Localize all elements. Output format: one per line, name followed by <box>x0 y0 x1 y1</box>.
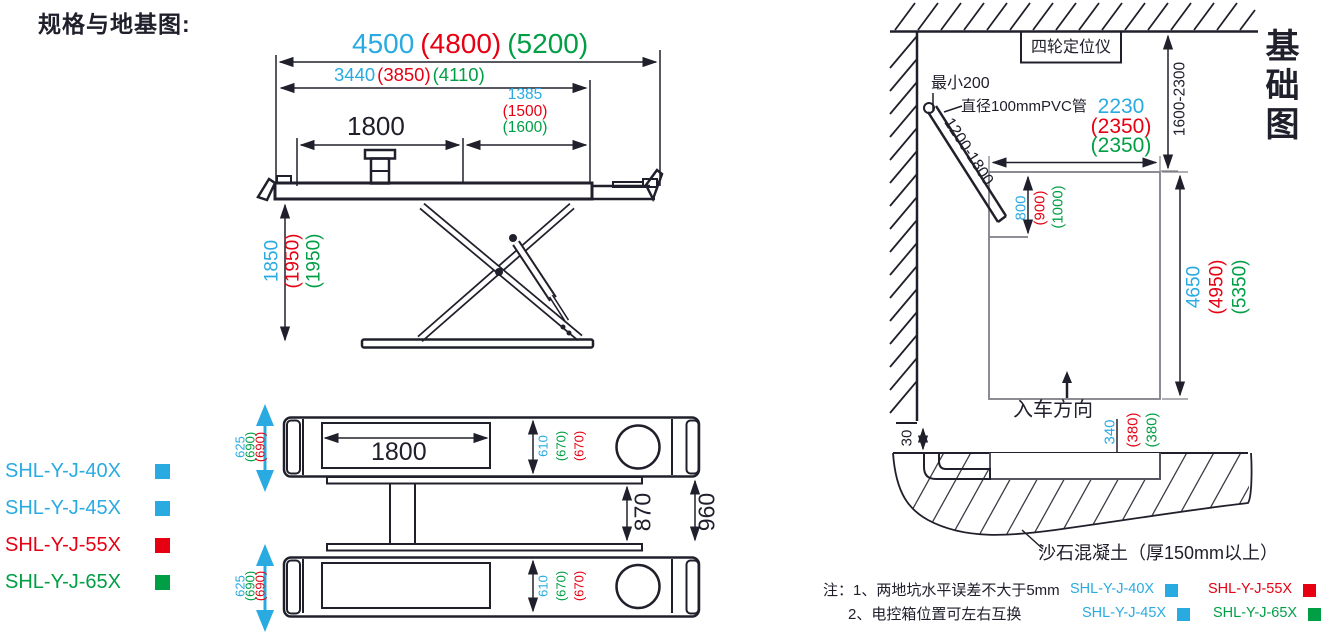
dim-value-green: (5200) <box>507 29 588 59</box>
dim-value-green: (4110) <box>433 65 485 85</box>
dim-pit-depth-blue: 340 <box>1103 419 1118 444</box>
model-name: SHL-Y-J-65X <box>5 572 121 594</box>
dim-pit-width: 2230 (2350) (2350) <box>1085 97 1157 156</box>
dim-wall-distance: 1600-2300 <box>1172 62 1188 136</box>
legend-swatch <box>1177 608 1190 621</box>
dim-platform-width-red: (670) <box>573 571 586 601</box>
legend-swatch <box>1308 608 1321 621</box>
dim-total-length: 4500 (4800) (5200) <box>352 29 588 59</box>
legend-model-name: SHL-Y-J-45X <box>1082 606 1166 622</box>
dim-platform-width-blue: 610 <box>537 435 550 457</box>
note-line-1: 注：1、两地坑水平误差不大于5mm <box>823 583 1060 599</box>
model-swatch <box>155 538 170 553</box>
dim-platform-length: 3440 (3850) (4110) <box>334 65 485 85</box>
dim-platform-gap: 960 <box>696 493 719 531</box>
dim-value-blue: 3440 <box>334 65 375 85</box>
legend-model-name: SHL-Y-J-55X <box>1208 582 1292 598</box>
legend-model-name: SHL-Y-J-40X <box>1070 582 1154 598</box>
dim-overall-width-red: (690) <box>254 432 267 462</box>
dim-rear-section: 1385 (1500) (1600) <box>494 87 556 137</box>
dim-recess-depth-blue: 800 <box>1014 195 1029 220</box>
dim-recess-depth-red: (900) <box>1033 190 1048 225</box>
dim-value-blue: 1385 <box>494 87 556 104</box>
pvc-pipe-label: 直径100mmPVC管 <box>961 99 1087 115</box>
dim-value-red: (3850) <box>377 65 430 85</box>
model-name: SHL-Y-J-55X <box>5 535 121 557</box>
dim-pit-length-blue: 4650 <box>1185 266 1204 308</box>
aligner-box-label: 四轮定位仪 <box>1021 39 1121 56</box>
side-view-drawing <box>258 50 662 348</box>
min-gap-label: 最小200 <box>931 75 990 92</box>
dim-wheelbase: 1800 <box>347 112 405 140</box>
foundation-title: 基础图 <box>1262 28 1296 145</box>
dim-pit-depth-red: (380) <box>1126 412 1141 447</box>
dim-recess-length: 1800 <box>371 439 427 466</box>
dim-value-green: (2350) <box>1085 136 1157 156</box>
dim-lift-height-green: (1950) <box>305 234 324 289</box>
legend-swatch <box>1165 584 1178 597</box>
concrete-label: 沙石混凝土（厚150mm以上） <box>1038 544 1278 563</box>
spec-foundation-diagram: 规格与地基图: 4500 (4800) (5200) 3440 (3850) (… <box>0 0 1325 639</box>
model-name: SHL-Y-J-45X <box>5 498 121 520</box>
entry-direction-label: 入车方向 <box>1013 400 1093 422</box>
dim-value-blue: 2230 <box>1085 97 1157 117</box>
model-swatch <box>155 575 170 590</box>
legend-model-name: SHL-Y-J-65X <box>1213 606 1297 622</box>
note-line-2: 2、电控箱位置可左右互换 <box>848 607 1021 623</box>
dim-lift-height-red: (1950) <box>284 234 303 289</box>
dim-overall-width-red: (690) <box>254 571 267 601</box>
dim-lift-height-blue: 1850 <box>263 240 282 282</box>
dim-value-red: (1500) <box>494 104 556 121</box>
dim-pit-length-red: (4950) <box>1208 260 1227 315</box>
dim-inner-gap: 870 <box>632 493 655 531</box>
dim-platform-width-blue: 610 <box>537 575 550 597</box>
dim-value-blue: 4500 <box>352 29 414 59</box>
dim-platform-width-green: (670) <box>555 431 568 461</box>
model-swatch <box>155 464 170 479</box>
dim-pit-length-green: (5350) <box>1231 260 1250 315</box>
dim-value-red: (4800) <box>420 29 501 59</box>
model-swatch <box>155 501 170 516</box>
dim-edge-step: 30 <box>900 430 915 447</box>
dim-pit-depth-green: (380) <box>1145 412 1160 447</box>
dim-recess-depth-green: (1000) <box>1051 185 1066 228</box>
dim-value-green: (1600) <box>494 120 556 137</box>
page-title: 规格与地基图: <box>38 12 191 37</box>
legend-swatch <box>1303 584 1316 597</box>
model-name: SHL-Y-J-40X <box>5 461 121 483</box>
dim-platform-width-red: (670) <box>573 431 586 461</box>
dim-platform-width-green: (670) <box>555 571 568 601</box>
